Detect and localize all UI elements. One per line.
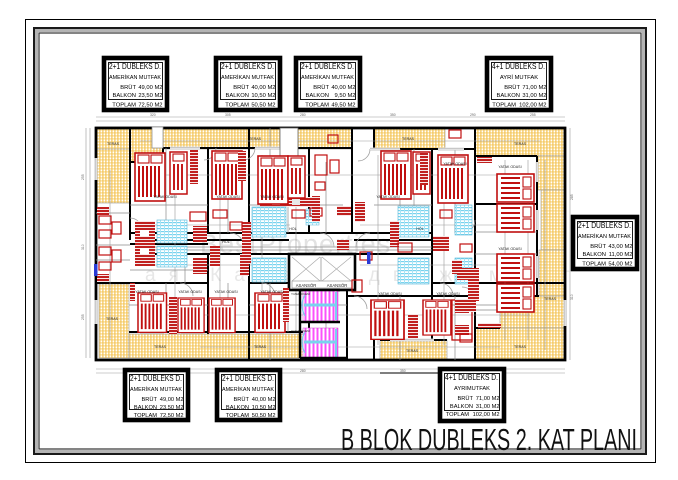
svg-text:YATAK ODASI: YATAK ODASI <box>153 195 176 199</box>
svg-text:BALKON: BALKON <box>582 252 606 258</box>
svg-text:50,50 M2: 50,50 M2 <box>251 103 275 109</box>
svg-text:280: 280 <box>300 113 306 117</box>
svg-text:YATAK ODASI: YATAK ODASI <box>498 247 521 251</box>
svg-text:4+1 DUBLEKS D.: 4+1 DUBLEKS D. <box>492 61 545 71</box>
svg-text:BRÜT: BRÜT <box>313 84 329 91</box>
svg-text:23,50 M2: 23,50 M2 <box>160 405 184 411</box>
svg-text:B BLOK DUBLEKS 2. KAT PLANI: B BLOK DUBLEKS 2. KAT PLANI <box>341 423 637 457</box>
svg-text:255: 255 <box>81 174 85 180</box>
svg-text:350: 350 <box>400 369 406 373</box>
svg-text:9,50 M2: 9,50 M2 <box>335 93 356 99</box>
svg-text:HOL: HOL <box>289 227 296 231</box>
svg-text:BALKON: BALKON <box>305 93 329 99</box>
svg-text:40,00 M2: 40,00 M2 <box>251 85 275 91</box>
svg-text:BALKON: BALKON <box>225 93 249 99</box>
svg-text:102,00 M2: 102,00 M2 <box>473 412 500 418</box>
svg-text:BALKON: BALKON <box>112 93 136 99</box>
svg-text:YATAK ODASI: YATAK ODASI <box>216 195 239 199</box>
svg-text:BRÜT: BRÜT <box>142 396 158 403</box>
svg-text:YATAK ODASI: YATAK ODASI <box>498 165 521 169</box>
svg-text:43,00 M2: 43,00 M2 <box>608 244 632 250</box>
svg-text:TERAS: TERAS <box>106 317 119 321</box>
svg-text:YATAK ODASI: YATAK ODASI <box>260 195 283 199</box>
svg-text:YATAK ODASI: YATAK ODASI <box>378 292 401 296</box>
svg-text:31,00 M2: 31,00 M2 <box>476 404 500 410</box>
svg-text:255: 255 <box>81 314 85 320</box>
svg-text:BALKON: BALKON <box>226 405 249 411</box>
svg-text:YATAK ODASI: YATAK ODASI <box>214 290 237 294</box>
svg-text:49,00 M2: 49,00 M2 <box>160 397 184 403</box>
svg-text:23,50 M2: 23,50 M2 <box>138 93 162 99</box>
svg-text:4+1 DUBLEKS D.: 4+1 DUBLEKS D. <box>445 373 498 382</box>
svg-text:TOPLAM: TOPLAM <box>446 412 470 418</box>
svg-text:310: 310 <box>570 294 574 300</box>
svg-text:TERAS: TERAS <box>154 345 167 349</box>
svg-text:40,00 M2: 40,00 M2 <box>331 85 355 91</box>
svg-text:AMERİKAN MUTFAK: AMERİKAN MUTFAK <box>109 74 161 81</box>
svg-text:11,00 M2: 11,00 M2 <box>609 252 633 258</box>
svg-text:320: 320 <box>150 113 156 117</box>
svg-text:285: 285 <box>570 194 574 200</box>
svg-text:49,50 M2: 49,50 M2 <box>331 103 355 109</box>
svg-text:280: 280 <box>300 369 306 373</box>
svg-text:71,00 M2: 71,00 M2 <box>522 85 546 91</box>
svg-text:BALKON: BALKON <box>134 405 157 411</box>
svg-text:ASANSÖR: ASANSÖR <box>327 283 347 288</box>
svg-text:49,00 M2: 49,00 M2 <box>138 85 162 91</box>
svg-text:71,00 M2: 71,00 M2 <box>476 396 500 402</box>
svg-text:TOPLAM: TOPLAM <box>134 413 158 419</box>
svg-text:TOPLAM: TOPLAM <box>582 262 606 268</box>
svg-text:2+1 DUBLEKS D.: 2+1 DUBLEKS D. <box>222 374 274 383</box>
svg-text:102,00 M2: 102,00 M2 <box>519 103 546 109</box>
svg-text:BRÜT: BRÜT <box>233 84 249 91</box>
svg-text:10,50 M2: 10,50 M2 <box>252 405 276 411</box>
svg-text:BRÜT: BRÜT <box>120 84 136 91</box>
svg-text:72,50 M2: 72,50 M2 <box>160 413 184 419</box>
svg-text:TERAS: TERAS <box>406 349 419 353</box>
svg-text:2+1 DUBLEKS D.: 2+1 DUBLEKS D. <box>109 61 161 71</box>
svg-text:10,50 M2: 10,50 M2 <box>251 93 275 99</box>
svg-text:BALKON: BALKON <box>496 93 520 99</box>
svg-text:TERAS: TERAS <box>544 297 557 301</box>
svg-text:YATAK ODASI: YATAK ODASI <box>178 290 201 294</box>
svg-text:YATAK ODASI: YATAK ODASI <box>443 162 466 166</box>
svg-text:TOPLAM: TOPLAM <box>305 103 329 109</box>
svg-text:YATAK ODASI: YATAK ODASI <box>376 195 399 199</box>
svg-text:AMERİKAN MUTFAK: AMERİKAN MUTFAK <box>578 233 631 240</box>
svg-text:2+1 DUBLEKS D.: 2+1 DUBLEKS D. <box>578 220 631 230</box>
svg-text:HOL: HOL <box>222 240 229 244</box>
svg-text:AMERİKAN MUTFAK: AMERİKAN MUTFAK <box>301 74 354 81</box>
svg-text:2+1 DUBLEKS D.: 2+1 DUBLEKS D. <box>130 374 182 383</box>
svg-text:TERAS: TERAS <box>514 345 527 349</box>
svg-text:290: 290 <box>470 113 476 117</box>
svg-text:BRÜT: BRÜT <box>590 243 606 250</box>
svg-text:AMERİKAN MUTFAK: AMERİKAN MUTFAK <box>221 74 274 81</box>
svg-text:BALKON: BALKON <box>450 404 473 410</box>
svg-text:TOPLAM: TOPLAM <box>225 103 249 109</box>
svg-text:54,00 M2: 54,00 M2 <box>608 262 632 268</box>
svg-text:72,50 M2: 72,50 M2 <box>138 103 162 109</box>
svg-text:AYRIMUTFAK: AYRIMUTFAK <box>454 386 490 392</box>
svg-text:40,00 M2: 40,00 M2 <box>252 397 276 403</box>
svg-text:TERAS: TERAS <box>402 137 415 141</box>
svg-text:TOPLAM: TOPLAM <box>112 103 136 109</box>
svg-text:TERAS: TERAS <box>254 345 267 349</box>
svg-text:2+1 DUBLEKS D.: 2+1 DUBLEKS D. <box>221 61 274 71</box>
svg-text:AYRİ MUTFAK: AYRİ MUTFAK <box>500 74 538 81</box>
svg-text:AMERİKAN MUTFAK: AMERİKAN MUTFAK <box>222 386 274 393</box>
svg-text:350: 350 <box>390 113 396 117</box>
svg-text:YATAK ODASI: YATAK ODASI <box>260 290 283 294</box>
svg-text:YATAK ODASI: YATAK ODASI <box>436 292 459 296</box>
svg-text:BRÜT: BRÜT <box>504 84 520 91</box>
svg-text:255: 255 <box>530 113 536 117</box>
svg-text:TOPLAM: TOPLAM <box>226 413 250 419</box>
svg-text:ASANSÖR: ASANSÖR <box>296 283 316 288</box>
svg-text:TERAS: TERAS <box>249 137 262 141</box>
svg-text:31,00 M2: 31,00 M2 <box>522 93 546 99</box>
svg-text:TOPLAM: TOPLAM <box>492 103 516 109</box>
svg-text:BRÜT: BRÜT <box>458 395 474 402</box>
svg-text:BRÜT: BRÜT <box>234 396 250 403</box>
svg-text:310: 310 <box>81 244 85 250</box>
svg-text:TERAS: TERAS <box>107 142 120 146</box>
svg-text:305: 305 <box>225 113 231 117</box>
svg-text:50,50 M2: 50,50 M2 <box>252 413 276 419</box>
svg-text:TERAS: TERAS <box>514 142 527 146</box>
svg-text:HOL: HOL <box>416 227 423 231</box>
svg-text:YATAK ODASI: YATAK ODASI <box>135 290 158 294</box>
svg-text:AMERİKAN MUTFAK: AMERİKAN MUTFAK <box>130 386 182 393</box>
svg-text:2+1 DUBLEKS D.: 2+1 DUBLEKS D. <box>301 61 354 71</box>
